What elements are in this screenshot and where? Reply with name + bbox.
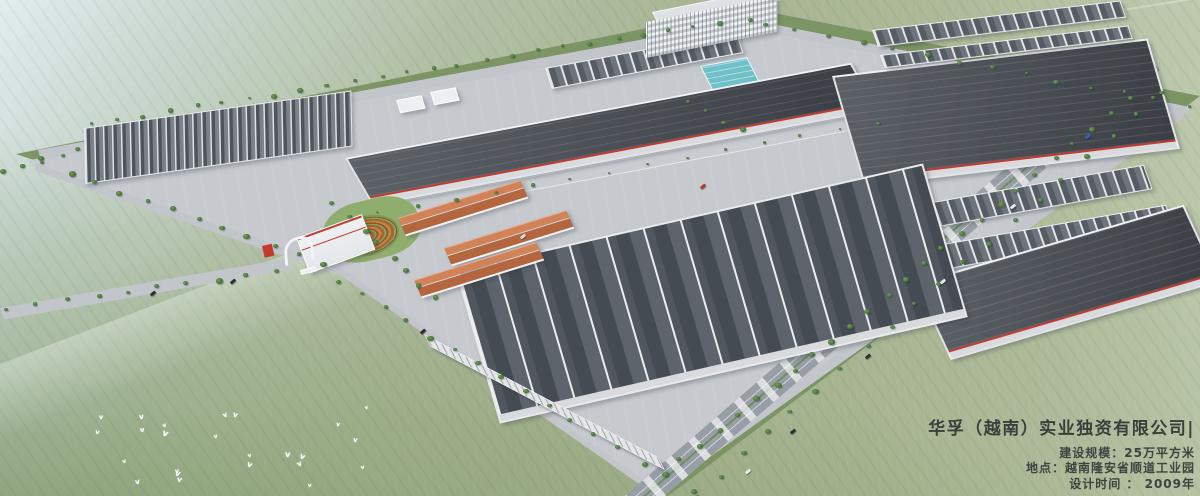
tree-icon (1054, 156, 1059, 160)
tree-icon (92, 180, 97, 184)
bird-icon: v (99, 415, 103, 421)
tree-icon (765, 429, 771, 434)
aerial-rendering: vvvvvvvvvvvvvvvvvvvvvvvv 华孚（越南）实业独资有限公司|… (0, 0, 1200, 496)
tree-icon (146, 199, 151, 203)
tree-icon (1089, 87, 1093, 90)
tree-icon (61, 154, 65, 157)
tree-icon (347, 215, 351, 218)
tree-icon (890, 47, 895, 51)
car (790, 428, 797, 434)
car (1085, 133, 1092, 139)
tree-icon (1134, 112, 1138, 115)
bird-icon: v (134, 477, 140, 485)
tree-icon (1053, 80, 1058, 84)
tree-icon (116, 191, 122, 196)
tree-icon (740, 127, 746, 132)
tree-icon (568, 178, 571, 181)
tree-icon (297, 88, 303, 93)
tree-icon (297, 252, 301, 255)
caption-location: 地点：越南隆安省顺道工业园 (928, 461, 1195, 477)
tree-icon (475, 361, 480, 365)
tree-icon (126, 291, 130, 294)
bird-icon: v (336, 423, 341, 429)
tree-icon (748, 18, 754, 22)
tree-icon (140, 115, 145, 119)
bird-icon: v (140, 427, 145, 435)
tree-icon (691, 489, 697, 494)
bird-icon: v (232, 411, 239, 419)
tree-icon (1188, 105, 1191, 108)
tree-icon (90, 122, 93, 125)
tree-icon (887, 293, 892, 297)
tree-icon (1123, 90, 1126, 92)
tree-icon (724, 148, 727, 151)
tree-icon (271, 94, 277, 99)
tree-icon (608, 172, 610, 174)
bird-icon: v (285, 450, 291, 459)
tree-icon (0, 169, 6, 174)
tree-icon (642, 462, 649, 467)
tree-icon (617, 36, 621, 39)
tree-icon (640, 33, 646, 37)
tree-icon (990, 65, 995, 69)
tree-icon (405, 70, 408, 73)
tree-icon (69, 171, 76, 177)
tree-icon (243, 273, 247, 276)
tree-icon (721, 121, 726, 125)
tree-icon (531, 183, 535, 186)
tree-icon (1013, 218, 1018, 222)
caption-year: 设计时间 ： 2009年 (928, 477, 1195, 493)
tree-icon (998, 202, 1005, 207)
tree-icon (890, 325, 896, 330)
tree-icon (4, 308, 8, 311)
tree-icon (839, 128, 841, 130)
tree-icon (787, 410, 792, 414)
tree-icon (384, 305, 389, 309)
bird-icon: v (352, 437, 357, 444)
caption: 华孚（越南）实业独资有限公司| 建设规模：25万平方米 地点：越南隆安省顺道工业… (928, 414, 1195, 493)
tree-icon (219, 226, 225, 231)
tree-icon (1070, 142, 1074, 145)
tree-icon (115, 118, 120, 122)
tree-icon (1109, 111, 1114, 115)
car (520, 233, 527, 239)
tree-icon (454, 64, 458, 67)
tree-icon (809, 352, 815, 357)
tree-icon (320, 262, 327, 267)
tree-icon (547, 404, 551, 407)
tree-icon (697, 444, 703, 449)
tree-icon (591, 432, 595, 435)
tree-icon (427, 336, 433, 341)
tree-icon (219, 101, 222, 104)
tree-icon (959, 260, 964, 264)
tree-icon (1159, 91, 1164, 95)
tree-icon (561, 44, 564, 47)
car (745, 468, 752, 474)
tree-icon (324, 84, 329, 88)
tree-icon (40, 161, 44, 165)
tree-icon (704, 109, 708, 112)
tree-icon (775, 383, 781, 388)
tree-icon (876, 122, 880, 125)
tree-icon (363, 229, 370, 234)
tree-icon (1038, 198, 1043, 202)
tree-icon (183, 281, 188, 285)
tree-icon (861, 40, 867, 45)
tree-icon (154, 284, 159, 288)
tree-icon (793, 369, 799, 374)
tree-icon (97, 294, 101, 298)
tree-icon (329, 201, 334, 205)
tree-icon (1112, 134, 1116, 137)
tree-icon (494, 191, 498, 194)
tree-icon (847, 324, 853, 329)
tree-icon (912, 302, 916, 305)
car (940, 278, 947, 284)
tree-icon (453, 348, 457, 351)
tree-icon (646, 163, 649, 165)
tree-icon (1025, 72, 1028, 74)
tree-icon (691, 25, 694, 28)
tree-icon (1151, 96, 1156, 100)
bird-icon: v (360, 466, 365, 472)
tree-icon (792, 28, 796, 31)
tree-icon (168, 108, 173, 112)
tree-icon (1128, 96, 1133, 100)
tree-icon (432, 66, 436, 69)
tree-icon (666, 28, 670, 31)
tree-icon (686, 100, 690, 103)
tree-icon (615, 445, 620, 449)
tree-icon (75, 147, 80, 151)
tree-icon (741, 451, 747, 456)
tree-icon (523, 389, 529, 394)
tree-icon (959, 231, 966, 236)
tree-icon (485, 58, 489, 61)
tree-icon (65, 297, 70, 301)
tree-icon (938, 246, 943, 250)
tree-icon (866, 344, 871, 348)
tree-icon (336, 280, 341, 284)
tree-icon (763, 23, 768, 27)
bird-icon: v (161, 429, 170, 439)
tree-icon (353, 79, 357, 82)
tree-icon (986, 242, 992, 247)
tree-icon (1013, 189, 1018, 193)
bird-icon: v (95, 430, 101, 437)
bird-icon: v (222, 412, 229, 420)
tree-icon (510, 54, 515, 58)
tree-icon (1089, 127, 1095, 132)
tree-icon (373, 240, 378, 244)
caption-scale: 建设规模：25万平方米 (928, 446, 1195, 462)
tree-icon (1032, 173, 1037, 177)
tree-icon (197, 217, 202, 221)
bird-icon: v (308, 484, 312, 490)
tree-icon (170, 206, 176, 211)
tree-icon (903, 277, 909, 281)
tree-icon (686, 157, 689, 159)
tree-icon (828, 339, 835, 344)
tree-icon (392, 256, 399, 261)
tree-icon (403, 318, 408, 322)
tree-icon (718, 428, 724, 432)
tree-icon (20, 164, 24, 167)
tree-icon (798, 134, 801, 137)
tree-icon (403, 268, 409, 273)
tree-icon (763, 141, 766, 144)
tree-icon (454, 198, 459, 202)
tree-icon (1058, 178, 1063, 182)
tree-icon (536, 48, 540, 51)
car (865, 353, 872, 359)
bird-icon: v (364, 406, 368, 412)
tree-icon (433, 295, 439, 300)
tree-icon (826, 34, 831, 38)
tree-icon (812, 389, 819, 394)
tree-icon (662, 472, 669, 477)
car (700, 183, 707, 189)
tree-icon (381, 75, 385, 78)
bird-icon: v (214, 435, 218, 441)
tree-icon (33, 302, 37, 305)
tree-icon (1084, 154, 1090, 159)
tree-icon (925, 52, 931, 57)
tree-icon (376, 211, 378, 213)
tree-icon (38, 156, 44, 161)
tree-icon (567, 418, 572, 422)
tree-icon (676, 457, 681, 461)
tree-icon (837, 367, 841, 370)
tree-icon (360, 292, 364, 295)
car (1010, 203, 1017, 209)
bird-icon: v (122, 459, 128, 466)
tree-icon (196, 103, 200, 107)
bird-icon: v (246, 461, 254, 470)
tree-icon (719, 475, 724, 479)
tree-icon (957, 61, 962, 65)
tree-icon (980, 218, 985, 222)
tree-icon (216, 278, 223, 283)
tree-icon (243, 234, 249, 239)
company-name: 华孚（越南）实业独资有限公司| (928, 414, 1195, 439)
tree-icon (416, 283, 422, 288)
car (150, 290, 157, 296)
tree-icon (735, 413, 740, 417)
tree-icon (864, 309, 870, 314)
tree-icon (416, 204, 420, 208)
tree-icon (717, 21, 723, 25)
car (420, 328, 427, 334)
tree-icon (753, 396, 760, 402)
car (230, 278, 237, 284)
tree-icon (273, 244, 279, 248)
tree-icon (274, 269, 279, 273)
tree-icon (248, 97, 252, 100)
tree-icon (498, 375, 504, 379)
bird-icon: v (138, 412, 144, 420)
tree-icon (587, 42, 592, 46)
tree-icon (921, 261, 927, 266)
